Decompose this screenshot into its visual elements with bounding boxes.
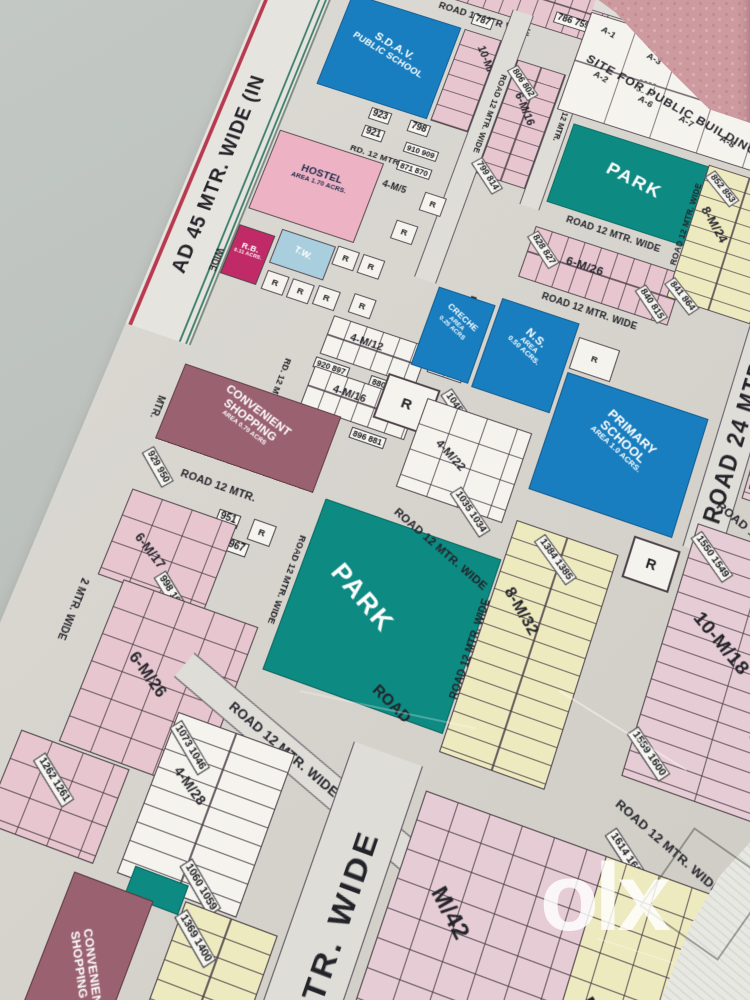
conv2-label: CONVENIENT SHOPPING [67, 928, 103, 1000]
olx-watermark: olx [540, 828, 750, 1000]
sdav-line1: S.D.A.V. [345, 14, 443, 79]
sdav-line2: PUBLIC SCHOOL [339, 23, 436, 87]
park-upper-label: PARK [603, 160, 665, 203]
primary-line2: SCHOOL [569, 392, 677, 492]
tw-label: T.W. [276, 237, 329, 271]
hostel-label: HOSTEL AREA 1.70 ACRS. [269, 155, 373, 203]
ns-label: N.S. AREA 0.50 ACRS. [494, 310, 567, 378]
sdav-school-label: S.D.A.V. PUBLIC SCHOOL [339, 14, 443, 87]
rb-label: R.B. 0.11 ACRS. [230, 239, 269, 264]
creche-label: CRECHE AREA 0.25 ACRS [430, 297, 485, 349]
park-lower-label: PARK [326, 558, 400, 638]
olx-logo: olx [540, 850, 667, 946]
photo-of-sector-map: AD 45 MTR. WIDE (IN SECTOR-22 CM. L K WI… [0, 0, 750, 1000]
